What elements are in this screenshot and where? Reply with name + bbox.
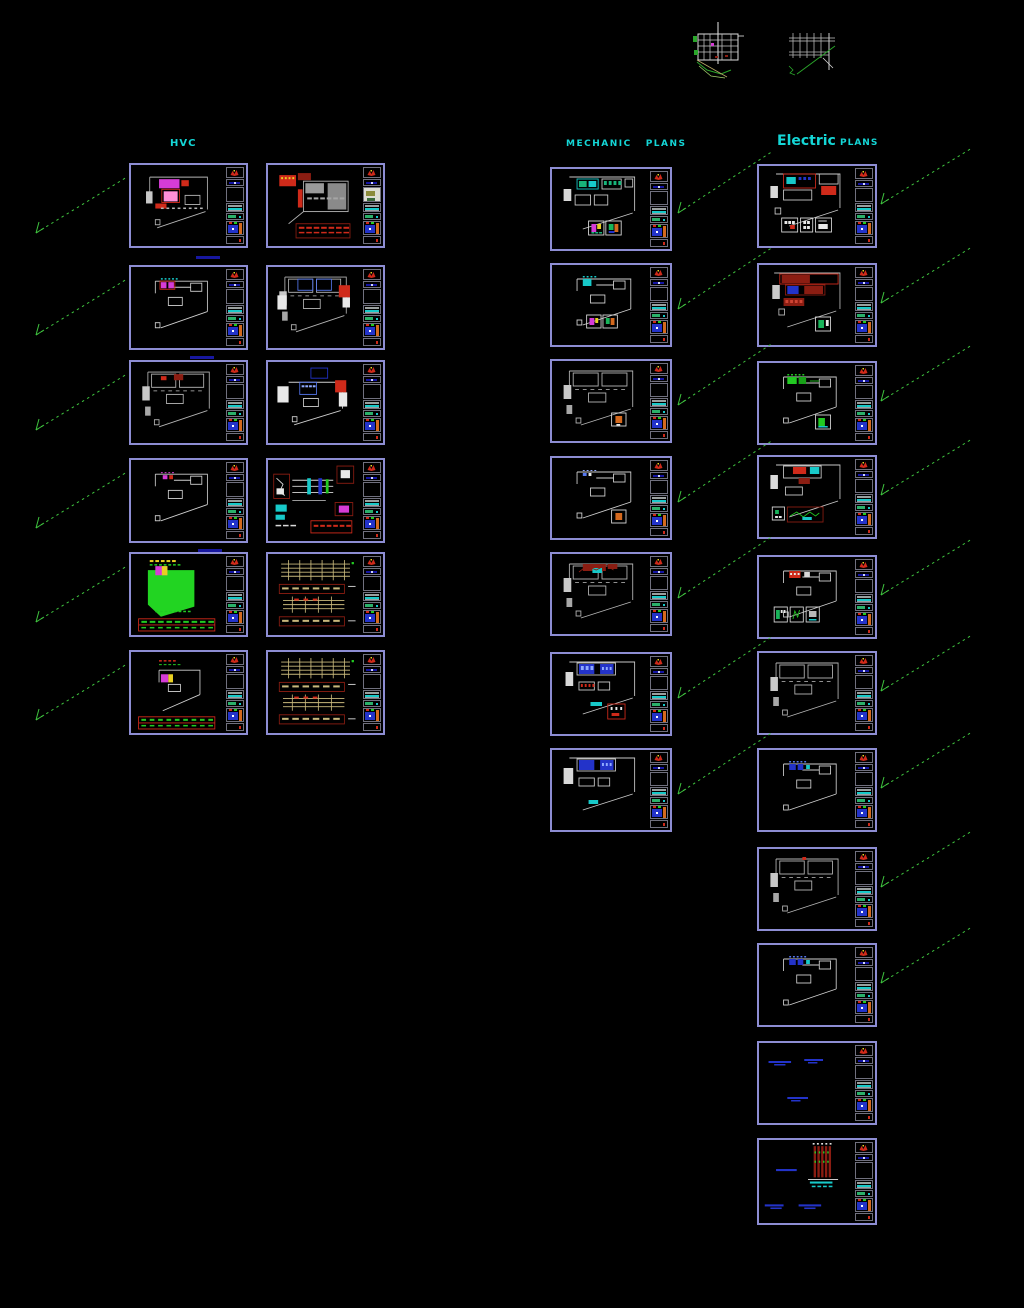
- titleblock-stamp: [855, 1190, 873, 1197]
- titleblock-seal: [650, 513, 668, 527]
- titleblock-stamp: [855, 213, 873, 220]
- titleblock-revision-rows: [363, 592, 381, 601]
- plans-word: PLANS: [840, 138, 878, 148]
- titleblock-stamp: [363, 315, 381, 322]
- titleblock-project-bar: [226, 179, 244, 186]
- titleblock-keyplan: [226, 289, 244, 304]
- titleblock-seal: [855, 418, 873, 432]
- sheet-elec-3[interactable]: [757, 361, 877, 445]
- sheet-titleblock: [855, 168, 873, 244]
- titleblock-project-bar: [855, 571, 873, 578]
- titleblock-stamp: [363, 700, 381, 707]
- titleblock-revision-rows: [363, 400, 381, 409]
- sheet-elec-4[interactable]: [757, 455, 877, 539]
- titleblock-logo-icon: [855, 559, 873, 570]
- titleblock-keyplan: [226, 576, 244, 591]
- sheet-drawing: [761, 655, 855, 731]
- titleblock-keyplan: [855, 772, 873, 786]
- titleblock-number: [650, 724, 668, 732]
- sheet-titleblock: [226, 364, 244, 441]
- titleblock-revision-rows: [226, 592, 244, 601]
- sheet-elec-5[interactable]: [757, 555, 877, 639]
- sheet-drawing: [554, 171, 650, 247]
- titleblock-logo-icon: [650, 460, 668, 471]
- cad-model-canvas[interactable]: HVC MECHANICPLANS Electric PLANS: [0, 0, 1024, 1308]
- titleblock-stamp: [650, 701, 668, 708]
- titleblock-keyplan: [855, 188, 873, 202]
- titleblock-number: [855, 820, 873, 828]
- titleblock-stamp: [650, 216, 668, 223]
- titleblock-project-bar: [855, 471, 873, 478]
- sheet-drawing: [133, 462, 226, 539]
- titleblock-logo-icon: [363, 654, 381, 665]
- sheet-hvc-a5[interactable]: [129, 552, 248, 637]
- titleblock-logo-icon: [226, 654, 244, 665]
- sheet-titleblock: [363, 462, 381, 539]
- titleblock-stamp: [855, 312, 873, 319]
- titleblock-revision-rows: [855, 494, 873, 503]
- titleblock-logo-icon: [226, 462, 244, 473]
- titleblock-project-bar: [855, 180, 873, 187]
- titleblock-keyplan: [855, 1162, 873, 1179]
- titleblock-stamp: [226, 213, 244, 220]
- titleblock-number: [226, 236, 244, 244]
- titleblock-number: [363, 531, 381, 539]
- titleblock-logo-icon: [363, 269, 381, 280]
- titleblock-keyplan: [363, 576, 381, 591]
- sheet-drawing: [133, 654, 226, 731]
- titleblock-number: [855, 1113, 873, 1121]
- titleblock-seal: [855, 708, 873, 722]
- sheet-elec-9[interactable]: [757, 943, 877, 1027]
- titleblock-keyplan: [226, 384, 244, 399]
- titleblock-keyplan: [363, 384, 381, 399]
- sheet-titleblock: [855, 1045, 873, 1121]
- sheet-titleblock: [226, 654, 244, 731]
- sheet-titleblock: [650, 460, 668, 536]
- titleblock-project-bar: [363, 568, 381, 575]
- titleblock-project-bar: [226, 666, 244, 673]
- sheet-drawing: [270, 654, 363, 731]
- titleblock-logo-icon: [650, 267, 668, 278]
- titleblock-revision-rows: [855, 690, 873, 699]
- titleblock-stamp: [855, 700, 873, 707]
- titleblock-revision-rows: [226, 305, 244, 314]
- sheet-mech-6[interactable]: [550, 652, 672, 736]
- sheet-drawing: [761, 1142, 855, 1221]
- titleblock-stamp: [363, 213, 381, 220]
- sheet-titleblock: [650, 656, 668, 732]
- titleblock-logo-icon: [650, 752, 668, 763]
- titleblock-seal: [855, 320, 873, 334]
- sheet-hvc-a3[interactable]: [129, 360, 248, 445]
- sheet-drawing: [554, 656, 650, 732]
- sheet-titleblock: [226, 462, 244, 539]
- titleblock-seal: [855, 1000, 873, 1014]
- titleblock-seal: [226, 516, 244, 530]
- titleblock-keyplan: [650, 676, 668, 690]
- titleblock-keyplan: [226, 482, 244, 497]
- sheet-drawing: [133, 167, 226, 244]
- sheet-titleblock: [855, 655, 873, 731]
- titleblock-project-bar: [855, 279, 873, 286]
- titleblock-revision-rows: [650, 495, 668, 504]
- titleblock-stamp: [855, 1090, 873, 1097]
- sheet-elec-2[interactable]: [757, 263, 877, 347]
- titleblock-number: [855, 236, 873, 244]
- titleblock-number: [855, 527, 873, 535]
- titleblock-keyplan: [855, 385, 873, 399]
- titleblock-logo-icon: [855, 655, 873, 666]
- titleblock-keyplan: [363, 187, 381, 202]
- titleblock-stamp: [226, 700, 244, 707]
- titleblock-logo-icon: [650, 171, 668, 182]
- titleblock-number: [855, 1213, 873, 1221]
- titleblock-project-bar: [363, 474, 381, 481]
- sheet-drawing: [270, 556, 363, 633]
- titleblock-seal: [363, 516, 381, 530]
- sheet-hvc-b5[interactable]: [266, 552, 385, 637]
- sheet-hvc-a2[interactable]: [129, 265, 248, 350]
- sheet-titleblock: [855, 459, 873, 535]
- titleblock-revision-rows: [855, 302, 873, 311]
- sheet-drawing: [761, 365, 855, 441]
- sheet-drawing: [761, 168, 855, 244]
- section-title-mechanic: MECHANICPLANS: [566, 139, 687, 149]
- titleblock-logo-icon: [855, 752, 873, 763]
- titleblock-stamp: [363, 602, 381, 609]
- titleblock-stamp: [363, 508, 381, 515]
- sheet-caption-mark: [196, 256, 220, 259]
- titleblock-revision-rows: [855, 594, 873, 603]
- sheet-hvc-b1[interactable]: [266, 163, 385, 248]
- titleblock-stamp: [650, 601, 668, 608]
- titleblock-revision-rows: [226, 203, 244, 212]
- titleblock-stamp: [855, 992, 873, 999]
- titleblock-revision-rows: [363, 305, 381, 314]
- sheet-drawing: [554, 460, 650, 536]
- titleblock-keyplan: [855, 675, 873, 689]
- titleblock-stamp: [855, 797, 873, 804]
- titleblock-logo-icon: [650, 556, 668, 567]
- electric-word: Electric: [777, 133, 836, 149]
- titleblock-revision-rows: [650, 398, 668, 407]
- titleblock-stamp: [226, 508, 244, 515]
- sheet-elec-1[interactable]: [757, 164, 877, 248]
- titleblock-number: [226, 433, 244, 441]
- sheet-titleblock: [363, 556, 381, 633]
- titleblock-project-bar: [855, 1154, 873, 1161]
- titleblock-seal: [855, 612, 873, 626]
- sheet-hvc-b6[interactable]: [266, 650, 385, 735]
- titleblock-keyplan: [650, 576, 668, 590]
- titleblock-revision-rows: [650, 691, 668, 700]
- sheet-drawing: [761, 459, 855, 535]
- titleblock-stamp: [226, 410, 244, 417]
- titleblock-logo-icon: [363, 364, 381, 375]
- titleblock-number: [363, 433, 381, 441]
- titleblock-revision-rows: [226, 690, 244, 699]
- titleblock-stamp: [650, 505, 668, 512]
- titleblock-seal: [855, 221, 873, 235]
- titleblock-stamp: [855, 504, 873, 511]
- titleblock-seal: [226, 418, 244, 432]
- sheet-elec-10[interactable]: [757, 1041, 877, 1125]
- sheet-drawing: [270, 269, 363, 346]
- sheet-drawing: [554, 556, 650, 632]
- titleblock-keyplan: [650, 287, 668, 301]
- sheet-mech-7[interactable]: [550, 748, 672, 832]
- titleblock-logo-icon: [226, 269, 244, 280]
- titleblock-revision-rows: [226, 498, 244, 507]
- sheet-drawing: [761, 947, 855, 1023]
- titleblock-revision-rows: [855, 1080, 873, 1089]
- titleblock-seal: [855, 1198, 873, 1212]
- sheet-drawing: [270, 364, 363, 441]
- titleblock-seal: [226, 708, 244, 722]
- sheet-hvc-a4[interactable]: [129, 458, 248, 543]
- sheet-titleblock: [650, 363, 668, 439]
- titleblock-seal: [226, 221, 244, 235]
- section-title-hvc: HVC: [170, 138, 196, 149]
- titleblock-number: [650, 528, 668, 536]
- sheet-drawing: [554, 363, 650, 439]
- sheet-titleblock: [226, 269, 244, 346]
- titleblock-stamp: [226, 602, 244, 609]
- sheet-mech-1[interactable]: [550, 167, 672, 251]
- titleblock-project-bar: [855, 764, 873, 771]
- sheet-titleblock: [855, 1142, 873, 1221]
- site-sketch-color[interactable]: [691, 20, 749, 84]
- titleblock-number: [650, 820, 668, 828]
- titleblock-project-bar: [363, 376, 381, 383]
- titleblock-seal: [363, 221, 381, 235]
- titleblock-number: [650, 335, 668, 343]
- titleblock-keyplan: [650, 191, 668, 205]
- section-title-electric: Electric PLANS: [777, 133, 878, 149]
- sheet-hvc-b3[interactable]: [266, 360, 385, 445]
- titleblock-logo-icon: [855, 947, 873, 958]
- titleblock-revision-rows: [855, 982, 873, 991]
- sheet-hvc-a6[interactable]: [129, 650, 248, 735]
- titleblock-logo-icon: [650, 656, 668, 667]
- sheet-elec-7[interactable]: [757, 748, 877, 832]
- titleblock-revision-rows: [363, 498, 381, 507]
- titleblock-seal: [855, 1098, 873, 1112]
- titleblock-seal: [855, 512, 873, 526]
- titleblock-number: [650, 624, 668, 632]
- titleblock-logo-icon: [855, 168, 873, 179]
- titleblock-revision-rows: [855, 1180, 873, 1189]
- titleblock-project-bar: [650, 568, 668, 575]
- titleblock-seal: [363, 418, 381, 432]
- titleblock-keyplan: [855, 871, 873, 885]
- titleblock-project-bar: [226, 568, 244, 575]
- site-sketch-line[interactable]: [783, 28, 841, 80]
- titleblock-seal: [855, 904, 873, 918]
- titleblock-logo-icon: [855, 1142, 873, 1153]
- sheet-drawing: [270, 462, 363, 539]
- sheet-drawing: [554, 752, 650, 828]
- sheet-elec-6[interactable]: [757, 651, 877, 735]
- titleblock-number: [855, 627, 873, 635]
- sheet-drawing: [133, 269, 226, 346]
- titleblock-project-bar: [650, 472, 668, 479]
- sheet-titleblock: [226, 556, 244, 633]
- sheet-drawing: [133, 364, 226, 441]
- titleblock-revision-rows: [855, 787, 873, 796]
- titleblock-revision-rows: [650, 302, 668, 311]
- sheet-drawing: [270, 167, 363, 244]
- titleblock-revision-rows: [363, 690, 381, 699]
- sheet-drawing: [761, 267, 855, 343]
- titleblock-number: [650, 239, 668, 247]
- titleblock-revision-rows: [855, 203, 873, 212]
- titleblock-number: [363, 236, 381, 244]
- titleblock-seal: [650, 320, 668, 334]
- titleblock-stamp: [855, 410, 873, 417]
- sheet-hvc-b2[interactable]: [266, 265, 385, 350]
- titleblock-keyplan: [363, 289, 381, 304]
- sheet-titleblock: [363, 167, 381, 244]
- sheet-mech-4[interactable]: [550, 456, 672, 540]
- titleblock-keyplan: [650, 383, 668, 397]
- sheet-titleblock: [855, 559, 873, 635]
- sheet-hvc-a1[interactable]: [129, 163, 248, 248]
- sheet-mech-3[interactable]: [550, 359, 672, 443]
- titleblock-seal: [650, 224, 668, 238]
- sheet-titleblock: [650, 752, 668, 828]
- sheet-drawing: [761, 752, 855, 828]
- titleblock-keyplan: [650, 772, 668, 786]
- mechanic-word: MECHANIC: [566, 139, 632, 149]
- sheet-mech-2[interactable]: [550, 263, 672, 347]
- titleblock-seal: [650, 416, 668, 430]
- titleblock-number: [855, 433, 873, 441]
- sheet-caption-mark: [190, 356, 214, 359]
- titleblock-keyplan: [363, 674, 381, 689]
- titleblock-keyplan: [855, 479, 873, 493]
- titleblock-seal: [650, 709, 668, 723]
- titleblock-logo-icon: [363, 167, 381, 178]
- titleblock-keyplan: [855, 967, 873, 981]
- sheet-hvc-b4[interactable]: [266, 458, 385, 543]
- titleblock-revision-rows: [650, 591, 668, 600]
- titleblock-stamp: [650, 408, 668, 415]
- titleblock-project-bar: [363, 281, 381, 288]
- titleblock-keyplan: [650, 480, 668, 494]
- titleblock-stamp: [226, 315, 244, 322]
- titleblock-project-bar: [650, 764, 668, 771]
- sheet-elec-8[interactable]: [757, 847, 877, 931]
- sheet-titleblock: [363, 654, 381, 731]
- titleblock-revision-rows: [855, 400, 873, 409]
- titleblock-keyplan: [226, 187, 244, 202]
- titleblock-project-bar: [650, 375, 668, 382]
- titleblock-revision-rows: [650, 206, 668, 215]
- titleblock-seal: [226, 323, 244, 337]
- titleblock-number: [363, 723, 381, 731]
- titleblock-logo-icon: [855, 459, 873, 470]
- sheet-titleblock: [855, 851, 873, 927]
- titleblock-revision-rows: [855, 886, 873, 895]
- sheet-titleblock: [855, 365, 873, 441]
- titleblock-number: [363, 625, 381, 633]
- titleblock-project-bar: [226, 376, 244, 383]
- sheet-drawing: [761, 1045, 855, 1121]
- titleblock-logo-icon: [226, 556, 244, 567]
- sheet-titleblock: [650, 556, 668, 632]
- titleblock-logo-icon: [855, 365, 873, 376]
- titleblock-project-bar: [226, 474, 244, 481]
- titleblock-stamp: [650, 312, 668, 319]
- sheet-drawing: [554, 267, 650, 343]
- titleblock-logo-icon: [650, 363, 668, 374]
- titleblock-stamp: [363, 410, 381, 417]
- titleblock-keyplan: [226, 674, 244, 689]
- titleblock-logo-icon: [855, 1045, 873, 1056]
- titleblock-logo-icon: [226, 167, 244, 178]
- titleblock-project-bar: [650, 183, 668, 190]
- sheet-caption-mark: [198, 549, 222, 552]
- titleblock-logo-icon: [855, 267, 873, 278]
- titleblock-number: [363, 338, 381, 346]
- sheet-titleblock: [363, 269, 381, 346]
- titleblock-project-bar: [363, 179, 381, 186]
- sheet-titleblock: [650, 171, 668, 247]
- titleblock-seal: [363, 708, 381, 722]
- sheet-drawing: [133, 556, 226, 633]
- titleblock-project-bar: [650, 668, 668, 675]
- titleblock-revision-rows: [363, 203, 381, 212]
- titleblock-seal: [650, 609, 668, 623]
- titleblock-seal: [363, 610, 381, 624]
- sheet-mech-5[interactable]: [550, 552, 672, 636]
- titleblock-logo-icon: [855, 851, 873, 862]
- titleblock-project-bar: [855, 377, 873, 384]
- sheet-titleblock: [226, 167, 244, 244]
- titleblock-number: [855, 919, 873, 927]
- titleblock-project-bar: [855, 1057, 873, 1064]
- titleblock-stamp: [855, 896, 873, 903]
- titleblock-number: [650, 431, 668, 439]
- titleblock-seal: [650, 805, 668, 819]
- titleblock-logo-icon: [363, 556, 381, 567]
- titleblock-seal: [226, 610, 244, 624]
- sheet-elec-11[interactable]: [757, 1138, 877, 1225]
- titleblock-keyplan: [855, 1065, 873, 1079]
- titleblock-seal: [855, 805, 873, 819]
- titleblock-number: [855, 335, 873, 343]
- titleblock-project-bar: [855, 863, 873, 870]
- titleblock-number: [855, 723, 873, 731]
- titleblock-stamp: [855, 604, 873, 611]
- sheet-drawing: [761, 559, 855, 635]
- sheet-titleblock: [855, 267, 873, 343]
- sheet-titleblock: [855, 752, 873, 828]
- titleblock-keyplan: [855, 287, 873, 301]
- titleblock-number: [226, 723, 244, 731]
- titleblock-project-bar: [855, 959, 873, 966]
- titleblock-revision-rows: [650, 787, 668, 796]
- sheet-titleblock: [855, 947, 873, 1023]
- titleblock-project-bar: [650, 279, 668, 286]
- titleblock-number: [855, 1015, 873, 1023]
- titleblock-stamp: [650, 797, 668, 804]
- titleblock-seal: [363, 323, 381, 337]
- titleblock-number: [226, 625, 244, 633]
- sheet-titleblock: [363, 364, 381, 441]
